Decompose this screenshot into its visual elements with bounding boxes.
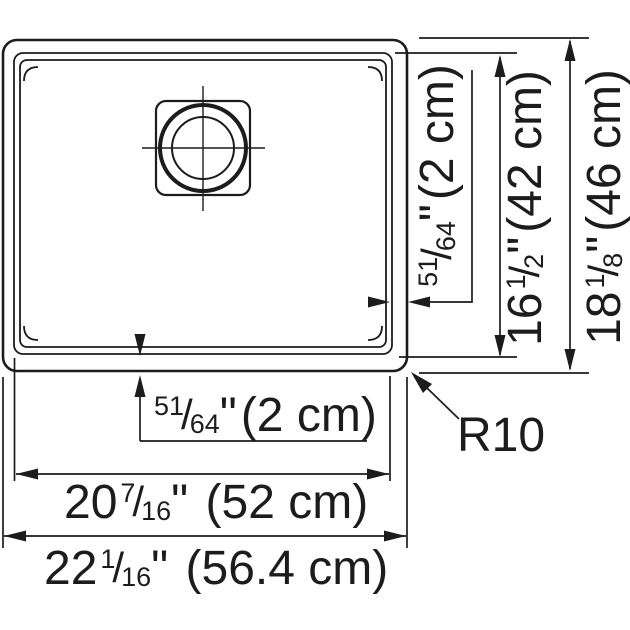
rim-corner-accent-bottom-left	[24, 326, 38, 340]
inch-mark: "	[171, 476, 188, 529]
fraction-denominator: 64	[431, 221, 461, 251]
fraction-denominator: 64	[190, 409, 220, 439]
fraction-numerator: 51	[154, 391, 184, 421]
arrowhead-bowl-width-left	[16, 469, 38, 480]
rim-offset-bottom-label: 51/64"(2 cm)	[151, 392, 377, 440]
fraction-denominator: 16	[121, 562, 151, 592]
rim-corner-accent-top-left	[24, 67, 38, 81]
fraction-denominator: 8	[598, 253, 628, 268]
fraction-denominator: 16	[141, 496, 171, 526]
whole-number: 20	[64, 476, 117, 529]
arrowhead-overall-width-right	[384, 531, 406, 542]
whole-number: 16	[499, 293, 552, 346]
metric-value: (46 cm)	[578, 69, 630, 232]
arrowhead-overall-depth-bottom	[565, 349, 576, 371]
corner-radius-label: R10	[457, 412, 545, 460]
inch-mark: "	[411, 204, 464, 221]
fraction-denominator: 2	[519, 254, 549, 269]
metric-value: (56.4 cm)	[172, 542, 388, 595]
metric-value: (2 cm)	[411, 64, 464, 200]
arrowhead-bowl-width-right	[367, 469, 389, 480]
metric-value: (52 cm)	[192, 476, 368, 529]
sink-technical-drawing: 51/64"(2 cm) 161/2"(42 cm) 181/8"(46 cm)…	[0, 0, 630, 630]
inch-mark: "	[499, 237, 552, 254]
metric-value: (42 cm)	[499, 70, 552, 233]
inch-mark: "	[151, 542, 168, 595]
rim-offset-right-label: 51/64"(2 cm)	[414, 64, 462, 290]
fraction-numerator: 51	[413, 257, 443, 287]
arrowhead-rim-bottom-up	[135, 375, 146, 397]
arrowhead-overall-width-left	[4, 531, 26, 542]
overall-depth-label: 181/8"(46 cm)	[581, 69, 629, 345]
rim-corner-accent-top-right	[368, 67, 382, 81]
whole-number: 18	[578, 292, 630, 345]
arrowhead-rim-right-outer	[408, 297, 430, 308]
overall-width-label: 221/16" (56.4 cm)	[44, 545, 388, 593]
radius-text: R10	[457, 409, 545, 462]
bowl-width-label: 207/16" (52 cm)	[64, 479, 368, 527]
inch-mark: "	[578, 236, 630, 253]
arrowhead-overall-depth-top	[565, 39, 576, 61]
rim-corner-accent-bottom-right	[368, 326, 382, 340]
whole-number: 22	[44, 542, 97, 595]
leader-corner-radius	[427, 388, 459, 419]
bowl-depth-label: 161/2"(42 cm)	[502, 70, 550, 346]
sink-outer-edge	[3, 40, 407, 371]
arrowhead-rim-bottom-down	[135, 334, 146, 356]
inch-mark: "	[220, 389, 237, 442]
metric-value: (2 cm)	[241, 389, 377, 442]
